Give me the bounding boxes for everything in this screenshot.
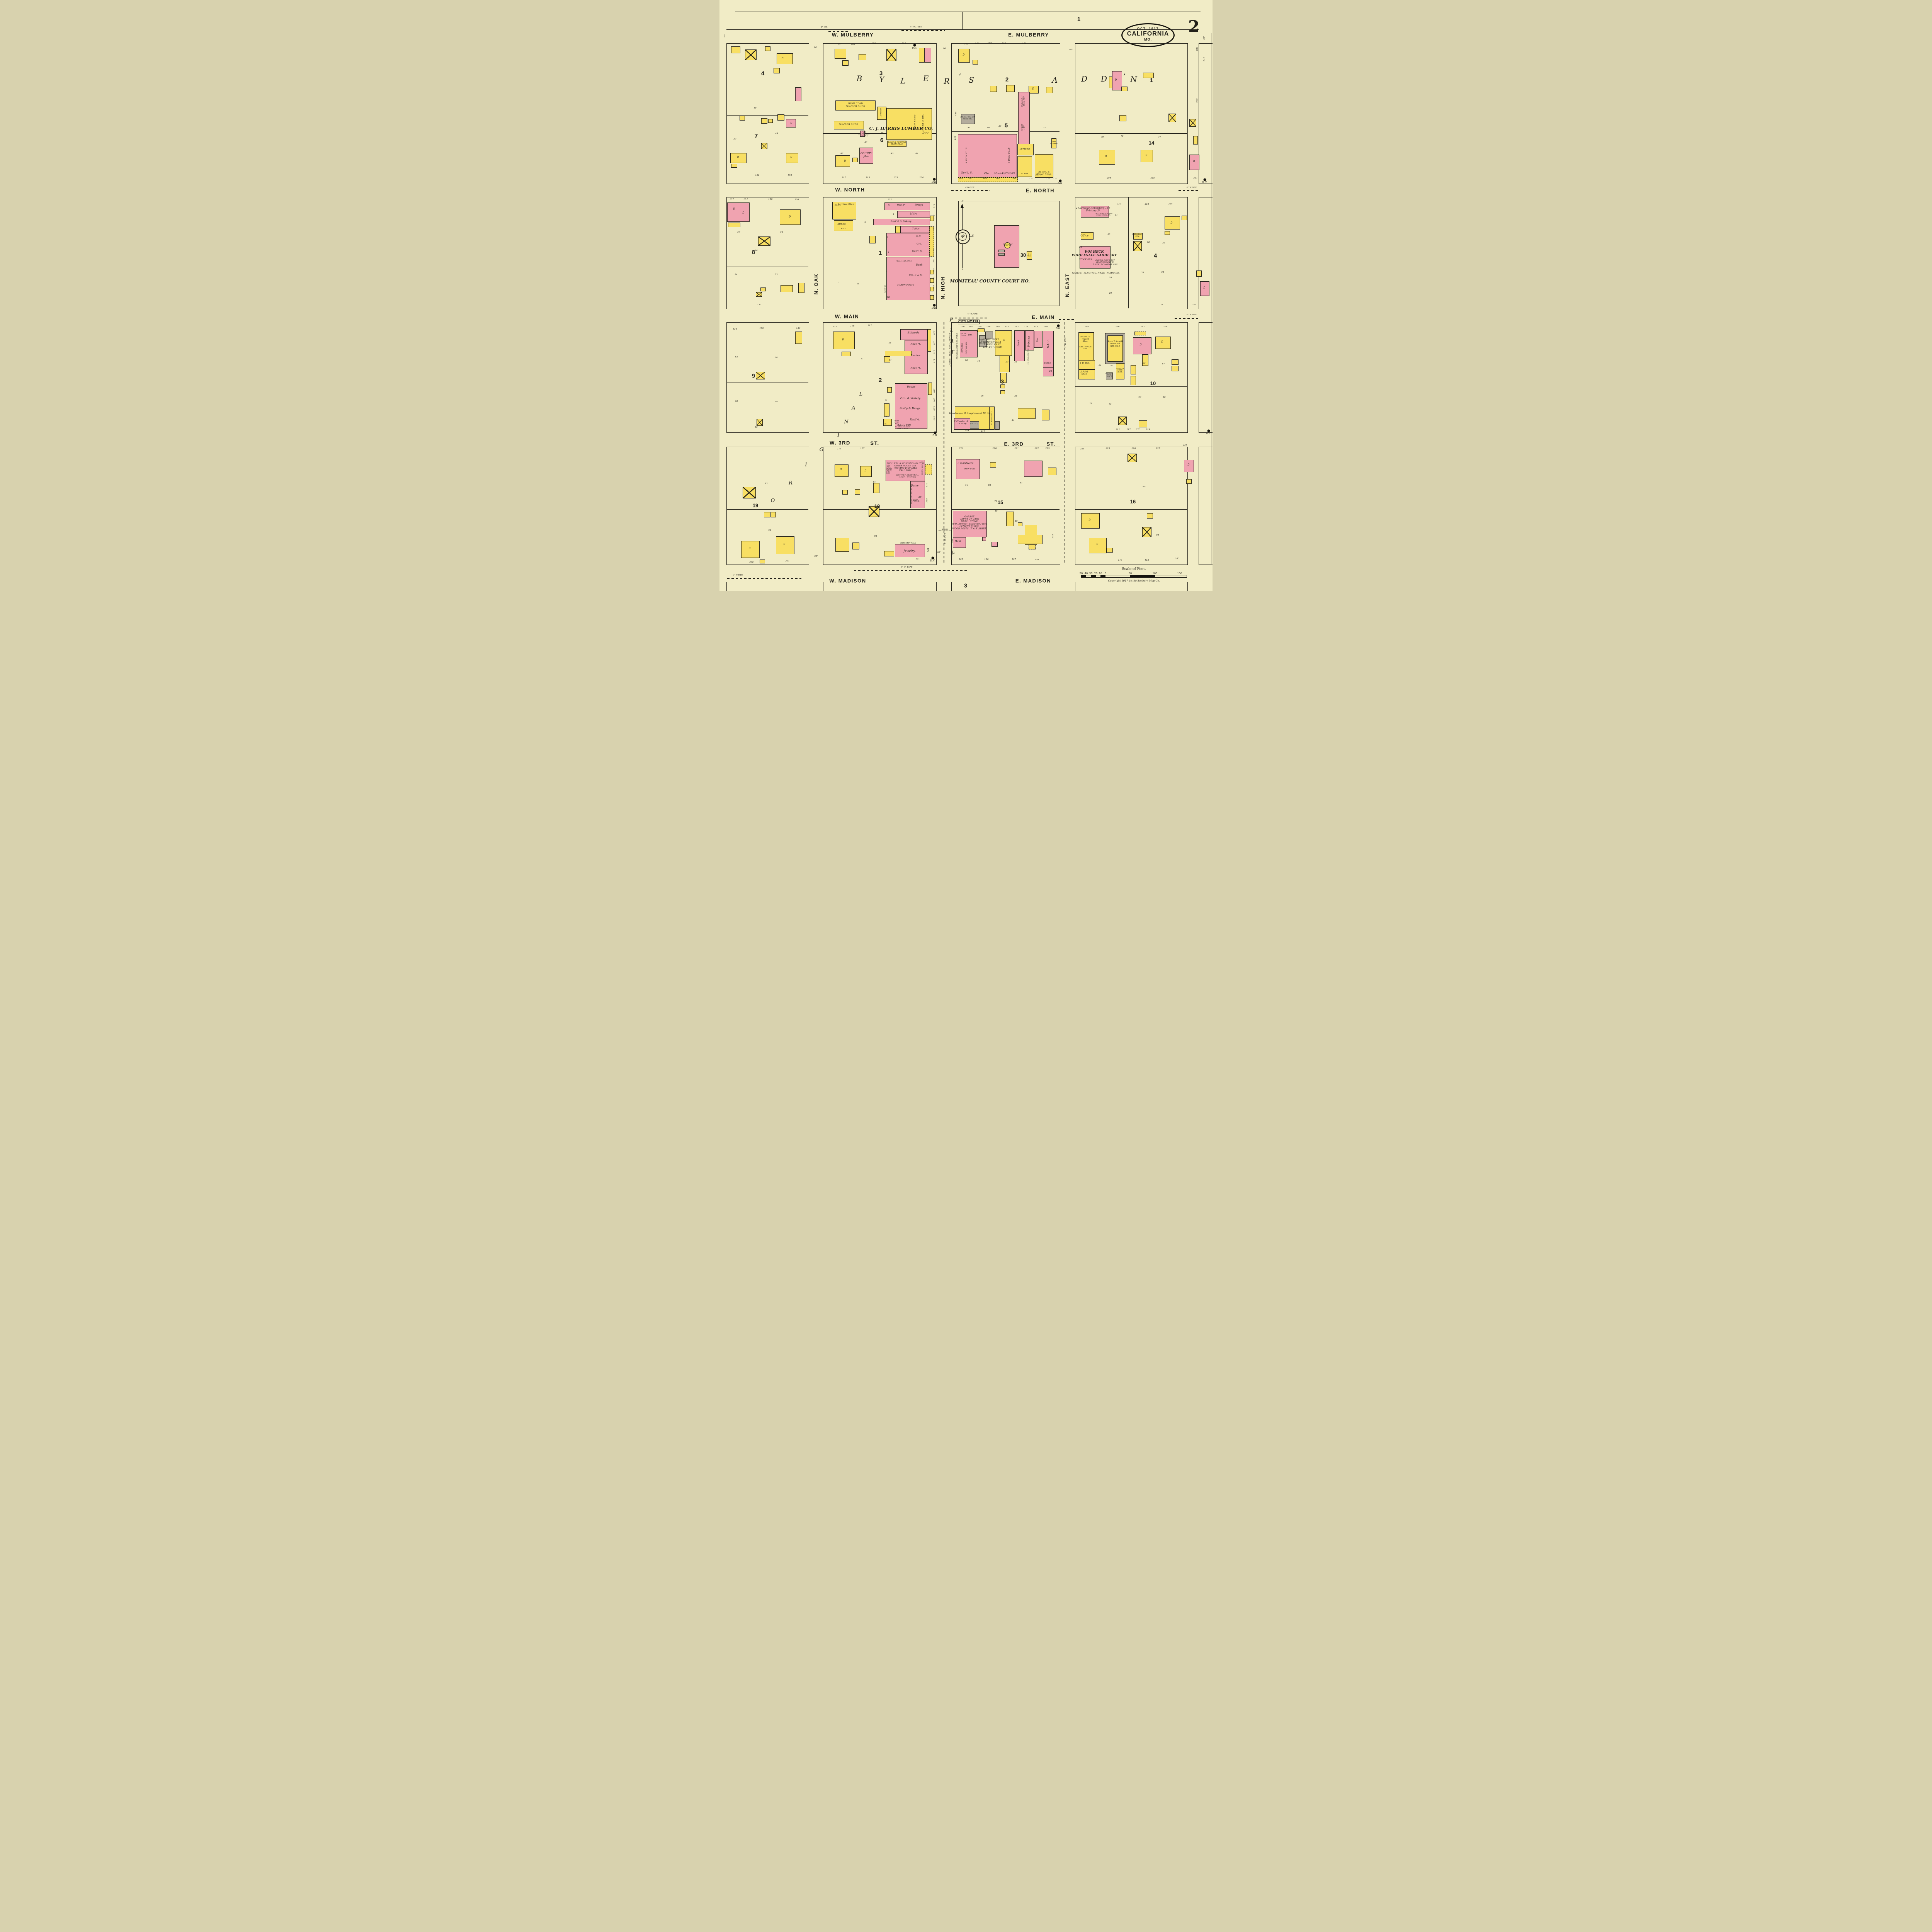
lot-number: 83 bbox=[965, 485, 968, 487]
lot-number: 221 bbox=[888, 199, 892, 201]
block-number: 2 bbox=[879, 377, 882, 384]
lot-number: 69 bbox=[1138, 396, 1141, 398]
city-block bbox=[726, 582, 809, 591]
map-label: WM HECK WHOLESALE SADDLERY bbox=[1072, 250, 1117, 257]
map-label: Rest'rt. bbox=[910, 418, 920, 422]
street-label-st-: ST. bbox=[870, 440, 879, 446]
building bbox=[795, 332, 802, 344]
lot-number: 17 bbox=[861, 358, 863, 360]
map-label: Off. bbox=[968, 334, 973, 337]
lot-number: 57 bbox=[737, 231, 740, 233]
double-hydrant-dot bbox=[934, 432, 937, 434]
lot-number: 28 bbox=[1109, 277, 1112, 279]
map-label: CITY HOTEL bbox=[958, 320, 980, 324]
building bbox=[1078, 360, 1095, 369]
building bbox=[731, 46, 740, 53]
map-label: 6" W. PIPE bbox=[944, 532, 947, 544]
map-label: D bbox=[1187, 464, 1189, 467]
block-number: 4 bbox=[1154, 253, 1157, 259]
map-label: Undertaker Shop 1ST bbox=[1022, 95, 1026, 107]
building bbox=[1043, 368, 1054, 376]
lot-number: 132 bbox=[757, 304, 762, 306]
double-hydrant-label: D.H. bbox=[1206, 432, 1211, 435]
lot-number: 19 bbox=[977, 360, 980, 362]
building bbox=[1182, 216, 1187, 220]
building bbox=[777, 53, 793, 64]
building bbox=[992, 542, 998, 547]
building bbox=[1196, 270, 1202, 277]
building bbox=[1134, 332, 1146, 335]
building bbox=[1172, 366, 1179, 371]
city-block bbox=[1199, 322, 1213, 433]
map-label: 2 Plumber & Tin Shop bbox=[954, 420, 968, 425]
map-label: COUNTY JAIL bbox=[861, 153, 872, 158]
building bbox=[1131, 365, 1136, 374]
map-label: 4" W. PIPE bbox=[910, 26, 922, 28]
lot-number: 500 bbox=[951, 551, 954, 555]
map-label: Gro. & Variety bbox=[900, 397, 920, 400]
lot-number: 102 bbox=[851, 43, 855, 46]
lot-number: 201 bbox=[786, 560, 790, 562]
lot-number: 16' bbox=[995, 510, 998, 512]
lot-number: 134 bbox=[733, 328, 737, 330]
lot-number: 711 bbox=[933, 247, 935, 252]
building bbox=[886, 257, 930, 300]
water-pipe bbox=[854, 570, 967, 571]
lot-number: 103 bbox=[788, 174, 792, 177]
building bbox=[743, 487, 756, 498]
sheet-number: 2 bbox=[1188, 17, 1199, 36]
lot-number: 105 bbox=[959, 558, 963, 561]
city-block bbox=[1199, 447, 1213, 565]
street-label-e-north: E. NORTH bbox=[1026, 188, 1054, 194]
map-line bbox=[1128, 197, 1129, 308]
building bbox=[924, 48, 931, 63]
lot-number: 79 bbox=[1101, 136, 1104, 138]
lot-number: 40 bbox=[987, 127, 990, 129]
building bbox=[1029, 545, 1036, 549]
map-label: FIRE DEPT STATION No.2 1 HOSE CART 400'-… bbox=[983, 338, 1002, 349]
map-label: Carriage Shop bbox=[838, 203, 854, 206]
plat-letter: G bbox=[820, 447, 823, 453]
lot-number: 107 bbox=[996, 178, 1000, 180]
map-label: Gro. bbox=[917, 243, 922, 246]
lot-number: 101 bbox=[916, 558, 920, 560]
building bbox=[740, 116, 745, 121]
street-label-n-high: N. HIGH bbox=[940, 276, 946, 299]
map-label: Barber bbox=[911, 354, 920, 357]
building bbox=[884, 551, 894, 556]
city-block bbox=[1199, 43, 1213, 184]
lot-number: 822 bbox=[1203, 57, 1205, 61]
lot-number: 108 bbox=[1035, 559, 1039, 561]
lot-number: 9 bbox=[864, 221, 866, 224]
street-label-e-main: E. MAIN bbox=[1032, 315, 1055, 320]
building bbox=[1189, 119, 1196, 127]
building bbox=[1046, 87, 1053, 93]
building bbox=[1121, 87, 1128, 91]
map-label: STOCK BRS. bbox=[1079, 259, 1092, 261]
map-label: D bbox=[888, 204, 890, 207]
building bbox=[1133, 241, 1142, 251]
building bbox=[929, 226, 934, 257]
lot-number: 227 bbox=[1156, 447, 1160, 450]
building bbox=[760, 287, 766, 291]
building bbox=[770, 512, 776, 517]
water-pipe bbox=[1065, 322, 1065, 564]
map-label: IRON COLS bbox=[964, 468, 976, 470]
map-label: 2 Hardware. bbox=[957, 462, 974, 464]
lot-number: 707 bbox=[933, 268, 935, 272]
subdivision-letter: N bbox=[1130, 75, 1137, 84]
double-hydrant-dot bbox=[932, 557, 934, 560]
lot-number: 212 bbox=[1127, 429, 1131, 431]
map-label: Hardware & Implement W. Ho. bbox=[949, 412, 992, 415]
lot-number: 222 bbox=[1035, 447, 1039, 450]
map-label: LUMBER SHED. IR.CL. bbox=[1116, 367, 1124, 372]
street-label-w-3rd: W. 3RD bbox=[830, 440, 850, 446]
lot-number: 709 bbox=[933, 259, 935, 263]
building bbox=[731, 164, 737, 168]
building bbox=[1107, 548, 1113, 553]
map-label: 6 IRON COLS bbox=[1008, 148, 1010, 163]
lot-number: 13 bbox=[884, 416, 887, 418]
map-line bbox=[726, 509, 808, 510]
map-label: Furniture bbox=[1002, 172, 1015, 175]
building bbox=[886, 108, 932, 140]
lot-number: 214 bbox=[730, 198, 734, 200]
building bbox=[764, 512, 770, 517]
scale-segment bbox=[1100, 575, 1105, 577]
map-label: Meat bbox=[954, 541, 961, 543]
map-label: Hall 2º bbox=[897, 204, 905, 206]
lot-number: 16' bbox=[754, 107, 757, 109]
lot-number: 439 bbox=[954, 136, 957, 140]
lot-number: 105 bbox=[983, 178, 987, 180]
lot-number: 815 bbox=[1196, 99, 1198, 103]
block-number: 5 bbox=[1005, 122, 1008, 129]
map-label: 2 HP.GASOL ENGINE 1GAL.GASOL.TK. bbox=[1095, 213, 1112, 216]
lot-number: 216 bbox=[1163, 326, 1168, 328]
map-line bbox=[962, 12, 963, 29]
lot-number: 106 bbox=[795, 199, 799, 201]
map-label: D bbox=[1145, 155, 1147, 157]
map-label: D bbox=[1193, 161, 1195, 163]
map-label: Bank bbox=[1017, 340, 1020, 347]
lot-number: 12 bbox=[884, 400, 887, 402]
building bbox=[1006, 512, 1014, 526]
block-number: 15 bbox=[998, 500, 1003, 505]
building bbox=[852, 543, 859, 549]
map-label: D bbox=[1003, 340, 1005, 342]
water-pipe bbox=[901, 30, 945, 31]
lot-number: 94 bbox=[768, 529, 771, 532]
lot-number: 3 bbox=[888, 252, 889, 254]
map-label: WOOD SHED. bbox=[991, 411, 993, 425]
building bbox=[1193, 136, 1198, 145]
building bbox=[1131, 376, 1136, 385]
lot-number: 81 bbox=[1020, 482, 1022, 484]
lot-number: 2B bbox=[918, 496, 922, 498]
map-label: Rest'rt. bbox=[911, 367, 921, 370]
lot-number: 2B bbox=[887, 296, 890, 299]
building bbox=[1000, 390, 1005, 394]
lot-number: 101 bbox=[838, 44, 842, 46]
scale-tick: 0 bbox=[1105, 572, 1106, 575]
city-block bbox=[1075, 582, 1188, 591]
water-pipe bbox=[1059, 319, 1076, 320]
subdivision-letter: S bbox=[969, 75, 974, 85]
map-label: STAGE bbox=[1044, 362, 1051, 365]
building bbox=[756, 292, 762, 297]
lot-number: 89 bbox=[1143, 486, 1145, 488]
building bbox=[1112, 71, 1122, 90]
lot-number: 60' bbox=[815, 555, 818, 558]
map-label: Milly bbox=[910, 213, 917, 215]
lot-number: 60' bbox=[943, 48, 947, 50]
building bbox=[885, 351, 912, 356]
map-label: LIGHTS:- ELECTRIC, HEAT:- FURNACE. bbox=[1072, 272, 1120, 274]
block-number: 9 bbox=[752, 373, 755, 379]
block-number: 6 bbox=[880, 137, 883, 144]
lot-number: 615 bbox=[934, 341, 936, 345]
building bbox=[1018, 522, 1022, 526]
double-hydrant-label: D.H. bbox=[932, 434, 938, 437]
building bbox=[927, 329, 931, 352]
map-label: 4" W.PIPE bbox=[1187, 187, 1197, 189]
lot-number: 108 bbox=[1002, 43, 1006, 45]
map-label: Drugs bbox=[907, 386, 915, 389]
lot-number: 221 bbox=[1015, 447, 1019, 450]
building bbox=[1006, 85, 1015, 92]
lot-number: 117 bbox=[1053, 178, 1058, 180]
lot-number: 23 bbox=[1014, 395, 1017, 398]
lot-number: 224 bbox=[1168, 203, 1173, 205]
lot-number: 60' bbox=[814, 46, 818, 49]
scale-segment bbox=[1130, 575, 1155, 577]
lot-number: 41 bbox=[968, 127, 970, 129]
lot-number: 4 bbox=[886, 271, 888, 273]
lot-number: 501 bbox=[927, 548, 930, 552]
building bbox=[895, 226, 901, 233]
scale-of-feet: Scale of Feet. 5040302010050100150 Copyr… bbox=[1081, 567, 1187, 582]
map-label: Jewelry. bbox=[903, 549, 915, 553]
lot-number: 29 bbox=[1109, 292, 1112, 294]
lot-number: 116 bbox=[837, 448, 842, 450]
map-label: BAKE OVEN BAS bbox=[895, 420, 900, 425]
map-label: D bbox=[737, 156, 739, 159]
lot-number: 16' bbox=[1175, 558, 1179, 560]
map-label: 4" W.PIPE bbox=[968, 313, 978, 315]
title-date: OCT. 1917 bbox=[1122, 27, 1173, 31]
block-number: 30 bbox=[1020, 252, 1026, 258]
lot-number: 1 bbox=[893, 213, 895, 216]
block-number: 19 bbox=[753, 503, 758, 509]
map-label: (IRON CLAD) bbox=[914, 114, 916, 129]
lot-number: 16' bbox=[755, 250, 759, 252]
map-label: Office. bbox=[1080, 234, 1089, 237]
lot-number: 114 bbox=[1024, 326, 1029, 328]
lot-number: 112 bbox=[1015, 326, 1019, 328]
lot-number: 515 bbox=[926, 498, 928, 503]
block-number: 4 bbox=[761, 70, 764, 77]
plat-letter: A bbox=[852, 405, 855, 411]
city-block bbox=[726, 447, 809, 565]
map-label: GARAGE CAP'CY 30 CARS HEAT:- STOVE (84) … bbox=[952, 515, 987, 530]
map-label: LUMBER bbox=[880, 107, 883, 117]
lot-number: 60' bbox=[1203, 36, 1206, 40]
lot-number: 67 bbox=[1162, 363, 1165, 365]
scale-tick: 100 bbox=[1153, 572, 1157, 575]
street-label-w-north: W. NORTH bbox=[835, 187, 865, 193]
map-label: D bbox=[1115, 79, 1117, 82]
double-hydrant-label: D.H. bbox=[932, 307, 937, 310]
lot-number: 106 bbox=[985, 558, 989, 561]
lot-number: 109 bbox=[1012, 178, 1016, 180]
lot-number: 77 bbox=[1158, 136, 1161, 138]
lot-number: 116 bbox=[1034, 326, 1038, 328]
lot-number: 110 bbox=[1005, 326, 1009, 328]
map-line bbox=[1075, 386, 1187, 387]
building bbox=[1099, 150, 1115, 165]
map-label: DINING RM. bbox=[966, 341, 968, 354]
lot-number: 34 bbox=[1161, 271, 1164, 274]
lot-number: 105 bbox=[769, 198, 773, 201]
map-label: Stat'y & Drugs bbox=[900, 407, 920, 410]
map-label: D bbox=[1096, 544, 1098, 546]
building bbox=[869, 236, 876, 243]
water-pipe bbox=[1179, 190, 1199, 191]
street-label-w-madison: W. MADISON bbox=[829, 578, 866, 584]
lot-number: 39 bbox=[998, 125, 1001, 128]
building bbox=[728, 223, 740, 227]
map-label: 2 Paint Shop bbox=[1080, 371, 1088, 375]
building bbox=[1165, 231, 1170, 235]
building bbox=[1018, 535, 1043, 544]
street-label-w-main: W. MAIN bbox=[835, 314, 859, 320]
lot-number: 53 bbox=[775, 274, 777, 276]
lot-number: 80 bbox=[1015, 520, 1017, 522]
lot-number: 220 bbox=[993, 447, 997, 450]
map-label: 5 IRON POSTS bbox=[897, 284, 914, 286]
lot-number: 31 bbox=[1115, 214, 1117, 216]
map-label: CUPOLA 40' ABV. RF bbox=[1003, 243, 1013, 247]
lot-number: 605 bbox=[934, 398, 936, 402]
block-number: 18 bbox=[874, 503, 880, 509]
building bbox=[835, 538, 849, 552]
lot-number: 502 bbox=[951, 539, 954, 543]
block-number: 2 bbox=[1005, 77, 1009, 83]
building bbox=[1107, 335, 1123, 362]
building bbox=[884, 202, 930, 210]
plat-letter: N bbox=[844, 419, 848, 425]
lot-number: 35 bbox=[1141, 272, 1144, 274]
building bbox=[835, 49, 846, 59]
map-label: OPEN 2º bbox=[885, 285, 887, 293]
map-label: Vac. bbox=[1037, 337, 1039, 342]
lot-number: 92 bbox=[874, 535, 877, 537]
lot-number: 136 bbox=[796, 327, 801, 330]
lot-number: 113 bbox=[866, 177, 870, 179]
lot-number: 224 bbox=[1080, 448, 1085, 450]
lot-number: 106 bbox=[986, 326, 991, 328]
map-label: STAGE & SCENERY 1ST bbox=[887, 465, 893, 474]
map-label: D bbox=[1170, 222, 1172, 225]
street-label-e-mulberry: E. MULBERRY bbox=[1008, 32, 1049, 38]
double-hydrant-dot bbox=[1057, 325, 1060, 327]
lot-number: 205 bbox=[750, 561, 754, 563]
water-pipe bbox=[727, 578, 801, 579]
map-label: 4 IRON COLS bbox=[966, 148, 968, 163]
map-label: Bank bbox=[916, 264, 923, 267]
map-label: BURIED CAP'CY 1250 GAL. bbox=[938, 529, 952, 532]
lot-number: 222 bbox=[1117, 203, 1121, 205]
building bbox=[757, 419, 763, 426]
building bbox=[1119, 115, 1126, 121]
street-label-e-madison: E. MADISON bbox=[1015, 578, 1051, 584]
lot-number: 603 bbox=[934, 406, 936, 411]
lot-number: 2 bbox=[887, 236, 888, 239]
lot-number: 32 bbox=[1147, 241, 1150, 243]
lot-number: 60' bbox=[937, 551, 941, 554]
map-label: N bbox=[962, 200, 964, 202]
map-label: D.G. bbox=[916, 235, 922, 238]
building bbox=[895, 383, 927, 429]
building bbox=[761, 143, 767, 149]
map-label: OFF. bbox=[924, 133, 930, 135]
lot-number: 517 bbox=[926, 483, 928, 487]
building bbox=[765, 46, 770, 51]
lot-number: 105 bbox=[964, 43, 969, 45]
map-line bbox=[823, 509, 936, 510]
block-number: 14 bbox=[1149, 140, 1154, 146]
lot-number: 49 bbox=[775, 133, 778, 135]
lot-number: 705 bbox=[933, 277, 935, 281]
sanborn-map-sheet: OCT. 1917 CALIFORNIA MO. 2 Scale of Feet… bbox=[719, 0, 1213, 591]
lot-number: 213 bbox=[1136, 429, 1141, 431]
map-label: 4'W.PIPE bbox=[965, 187, 975, 189]
lot-number: 102 bbox=[969, 326, 973, 328]
lot-number: 719 bbox=[934, 204, 936, 208]
scale-tick: 40 bbox=[1085, 572, 1088, 575]
lot-number: 30 bbox=[1107, 233, 1110, 236]
map-line bbox=[951, 509, 1060, 510]
building bbox=[1000, 384, 1005, 388]
building bbox=[781, 285, 793, 292]
map-label: D bbox=[844, 160, 846, 163]
lot-number: 33 bbox=[1162, 242, 1165, 244]
lot-number: 613 bbox=[934, 350, 936, 354]
building bbox=[1133, 337, 1151, 354]
double-hydrant-dot bbox=[1207, 430, 1210, 432]
double-hydrant-dot bbox=[1204, 179, 1206, 181]
map-label: Agric'l. Imp'lt Ware Ho (IR. CL.) bbox=[1107, 340, 1123, 347]
building bbox=[919, 48, 924, 63]
lot-number: 210 bbox=[981, 430, 985, 432]
lot-number: 2B bbox=[1079, 246, 1082, 248]
scale-tick: 50 bbox=[1080, 572, 1083, 575]
map-line bbox=[1075, 509, 1187, 510]
map-label: Rest'rt & Bakery bbox=[891, 221, 912, 223]
map-line bbox=[735, 12, 1201, 12]
map-label: D bbox=[781, 57, 784, 60]
lot-number: 611 bbox=[934, 359, 936, 363]
block-number: 1 bbox=[879, 250, 882, 257]
map-label: D bbox=[864, 470, 866, 473]
lot-number: 112 bbox=[1145, 559, 1149, 561]
map-label: COAL BUNKER bbox=[1050, 141, 1058, 144]
building bbox=[873, 483, 879, 493]
